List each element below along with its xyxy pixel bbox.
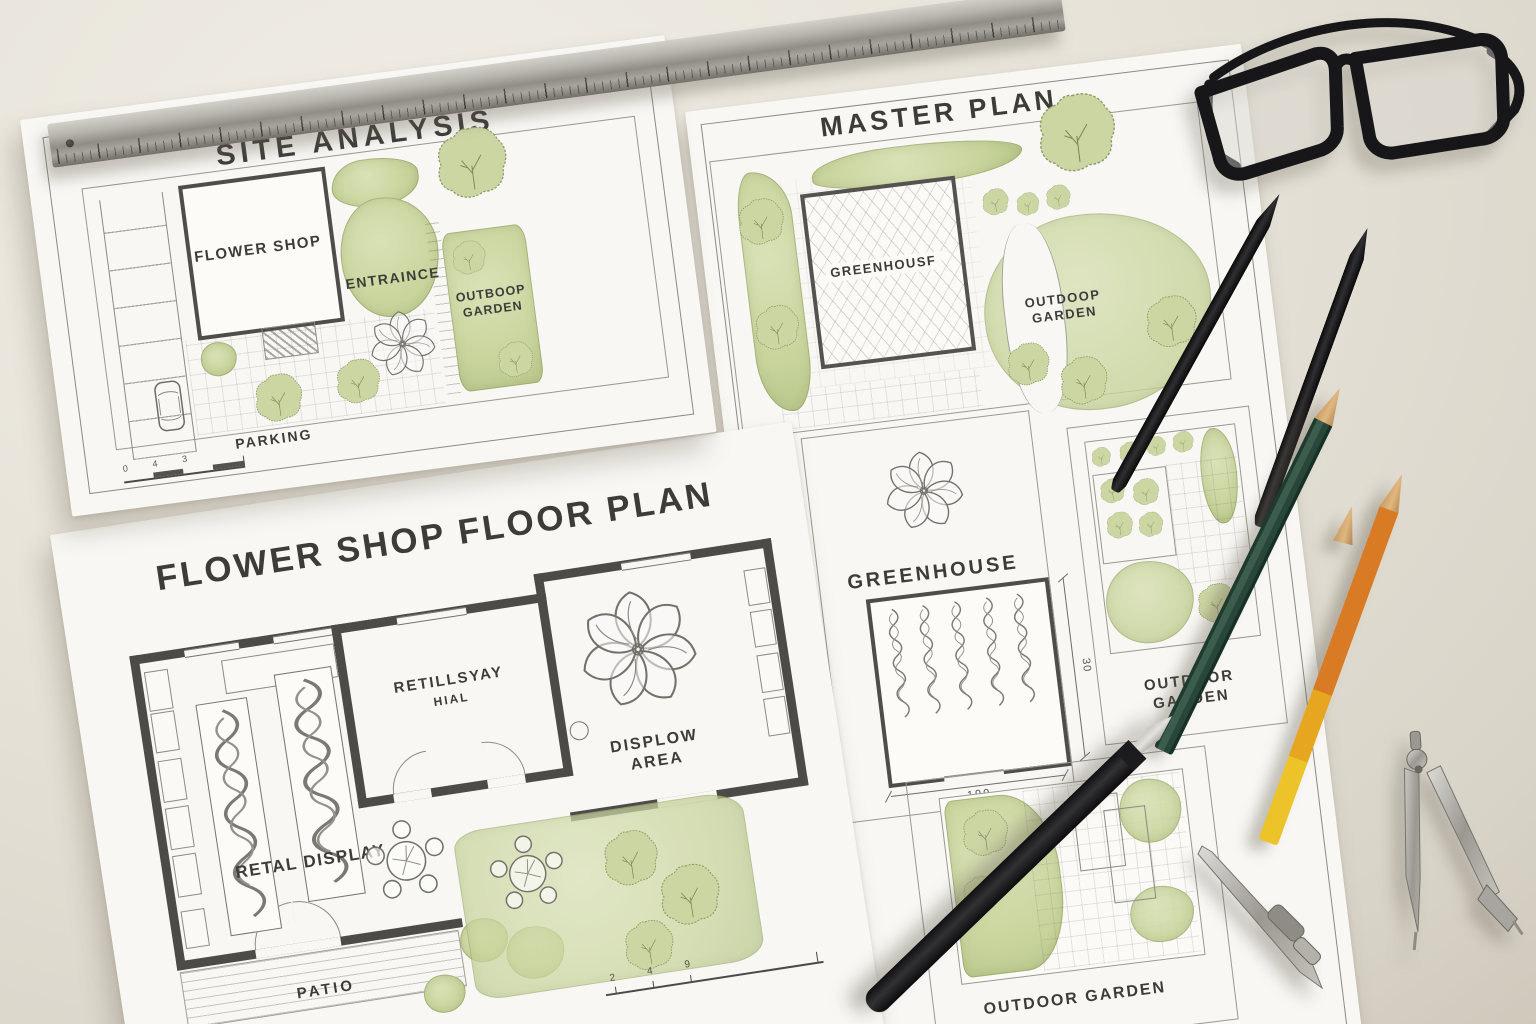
scale-tick — [243, 456, 246, 466]
scale-tick-label: 2 — [609, 972, 618, 986]
hedge-tree-icon — [749, 300, 805, 356]
bush-icon — [493, 337, 538, 382]
scale-tick — [690, 975, 692, 982]
scale-tick-label: 9 — [684, 959, 693, 973]
bush-icon — [1013, 189, 1042, 218]
wall-shelf — [144, 669, 174, 712]
bush-icon — [1129, 475, 1162, 508]
scale-tick-label: 4 — [646, 965, 655, 979]
bush-icon — [956, 804, 1014, 862]
scale-tick — [615, 987, 617, 994]
wall-shelf — [172, 853, 202, 898]
label-line: HIAL — [433, 690, 471, 709]
bush-icon — [1043, 182, 1074, 213]
scale-tick-label: 3 — [181, 453, 189, 465]
plant-row-icon — [976, 595, 1009, 713]
scale-tick-label: 0 — [122, 463, 130, 475]
wall-shelf — [157, 758, 187, 803]
display-table — [195, 697, 282, 936]
bush-icon — [1135, 509, 1166, 540]
eyeglasses — [1178, 0, 1530, 212]
hedge-tree-icon — [732, 193, 790, 251]
bush-icon — [1089, 445, 1114, 470]
scale-line — [124, 466, 245, 484]
wall-shelf — [165, 805, 195, 850]
bush-icon — [1170, 428, 1197, 455]
og-right-paving — [1165, 455, 1251, 585]
table-chairs-sketch-icon — [352, 806, 461, 915]
plant-row-icon — [913, 603, 946, 721]
flower-sketch-icon — [563, 576, 713, 722]
bush-icon — [447, 236, 490, 279]
wall-shelf — [180, 908, 209, 949]
pencil-tip — [1333, 504, 1362, 546]
pencil-tip — [1314, 384, 1349, 427]
bush-icon — [247, 367, 310, 428]
large-tree-icon — [426, 115, 517, 211]
wall-shelf — [150, 710, 180, 753]
pencil-tip — [1380, 471, 1412, 514]
greenhouse-plan — [866, 577, 1072, 788]
bush-icon — [1002, 337, 1055, 390]
plant-sketch-icon — [198, 703, 279, 930]
desk-surface: MASTER PLAN GREENHOUSF OUTDOOP GARDEN GR… — [0, 0, 1536, 1024]
flower-sketch-icon — [361, 294, 444, 395]
ruler-hole — [65, 139, 74, 148]
drafting-divider — [1188, 840, 1358, 1020]
plant-row-icon — [882, 607, 915, 725]
door-arc — [481, 736, 525, 780]
scale-tick-label: 4 — [152, 458, 160, 470]
bush-icon — [979, 185, 1012, 218]
greenhouse-height-dim: 30 — [1078, 657, 1093, 673]
plant-row-icon — [944, 599, 977, 717]
flower-sketch-icon — [876, 441, 972, 541]
display-area-pot — [568, 720, 590, 742]
large-tree-icon — [1027, 81, 1126, 183]
plant-row-icon — [1007, 591, 1040, 709]
table-chairs-sketch-icon — [476, 822, 579, 925]
display-area-label: DISPLOW AREA — [609, 725, 703, 778]
door-arc — [387, 751, 431, 795]
scale-tick — [652, 981, 654, 988]
retail-hall-label: RETILLSYAY HIAL — [393, 663, 508, 717]
bush-icon — [1054, 350, 1114, 410]
scale-line — [606, 961, 824, 996]
door-arc — [292, 895, 341, 944]
wall-segment — [358, 767, 574, 809]
scale-tick — [816, 952, 819, 963]
bush-icon — [1103, 508, 1136, 541]
sheet-floor-plan: FLOWER SHOP FLOOR PLAN — [50, 422, 888, 1024]
drafting-compass — [1340, 726, 1536, 976]
